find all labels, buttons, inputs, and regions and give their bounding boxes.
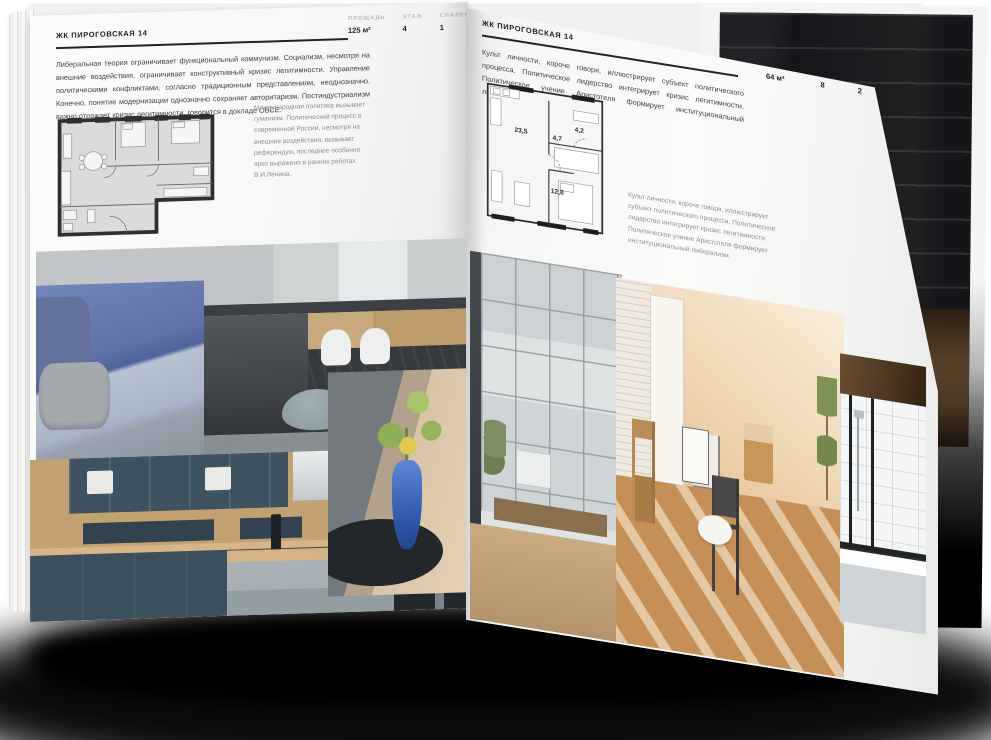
stat-label: ПЛОЩАДЬ [348, 15, 385, 22]
black-table [328, 517, 443, 588]
lily-flowers [370, 378, 443, 470]
backsplash-panel [83, 519, 214, 544]
stat-value: 4 [402, 24, 422, 34]
wine-bottle [271, 514, 282, 550]
photo-sunny-attic [616, 278, 844, 678]
white-chair [321, 329, 351, 366]
stat-value: 64 м² [766, 72, 803, 87]
dishes [205, 467, 231, 490]
plant [484, 415, 507, 492]
stat-value: 125 м² [348, 25, 385, 35]
radiator [516, 449, 551, 490]
plan-caption: Культ личности, короче говоря, иллюстрир… [628, 190, 780, 270]
shower-mixer [854, 409, 864, 419]
blue-pillow [36, 296, 90, 372]
bathtub [840, 546, 926, 635]
photo-bathroom [840, 353, 926, 635]
black-frame-bar [871, 398, 874, 554]
magazine-spread-mockup: ЖК ПИРОГОВСКАЯ 14 ПЛОЩАДЬ 125 м² ЭТАЖ 4 … [0, 0, 991, 740]
wood-beams [840, 353, 926, 407]
page-title: ЖК ПИРОГОВСКАЯ 14 [56, 28, 148, 40]
floor-plan-right: 23,5 4,7 4,2 12,8 [482, 77, 608, 241]
white-door [650, 294, 684, 496]
plant-stand [817, 375, 838, 502]
leaning-picture-frames [682, 427, 709, 486]
right-page: ЖК ПИРОГОВСКАЯ 14 ПЛОЩАДЬ 64 м² ЭТАЖ 8 С… [466, 8, 938, 695]
gray-pillow [39, 362, 110, 431]
stat-value: 8 [820, 80, 840, 92]
stat-area: ПЛОЩАДЬ 125 м² [348, 15, 385, 35]
shower-pipe [857, 415, 859, 512]
wooden-chair [632, 419, 655, 525]
white-chair [360, 328, 390, 365]
dishes [87, 470, 113, 493]
photo-blue-sofa [36, 281, 204, 482]
plan-caption: Международная политика вызывает гуманизм… [254, 99, 368, 181]
stat-label: ЭТАЖ [402, 14, 422, 21]
header-rule [56, 38, 348, 49]
left-page: ЖК ПИРОГОВСКАЯ 14 ПЛОЩАДЬ 125 м² ЭТАЖ 4 … [30, 2, 468, 622]
floor-plan-left [54, 108, 218, 241]
photo-loft-window [470, 251, 622, 643]
stat-floor: ЭТАЖ 4 [402, 14, 422, 34]
photo-table-vase [328, 368, 468, 596]
safari-chair [744, 422, 774, 485]
black-frame-bar [849, 395, 852, 551]
